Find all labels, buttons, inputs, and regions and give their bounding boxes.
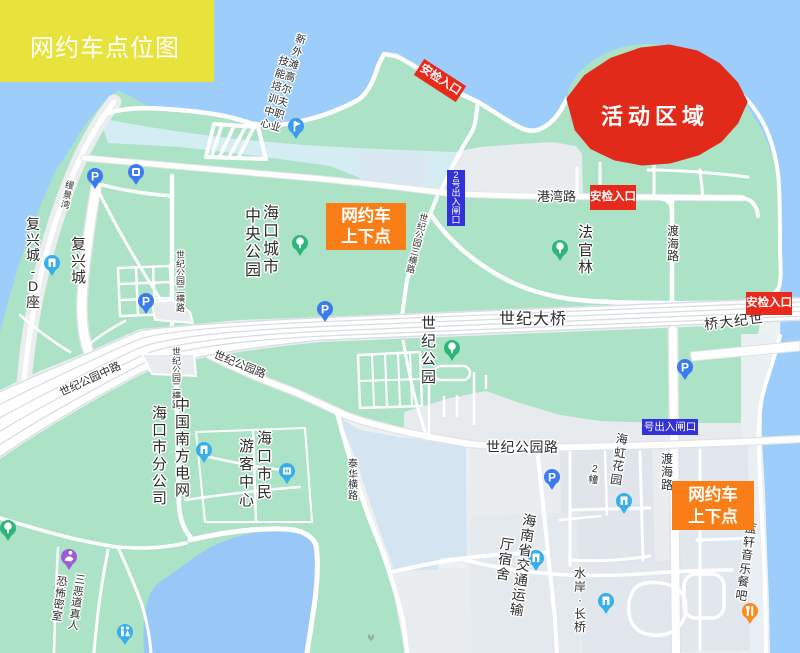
svg-text:P: P <box>142 294 150 308</box>
svg-text:P: P <box>681 360 689 374</box>
svg-text:P: P <box>321 302 329 316</box>
svg-text:P: P <box>91 169 99 183</box>
svg-text:P: P <box>548 470 556 484</box>
